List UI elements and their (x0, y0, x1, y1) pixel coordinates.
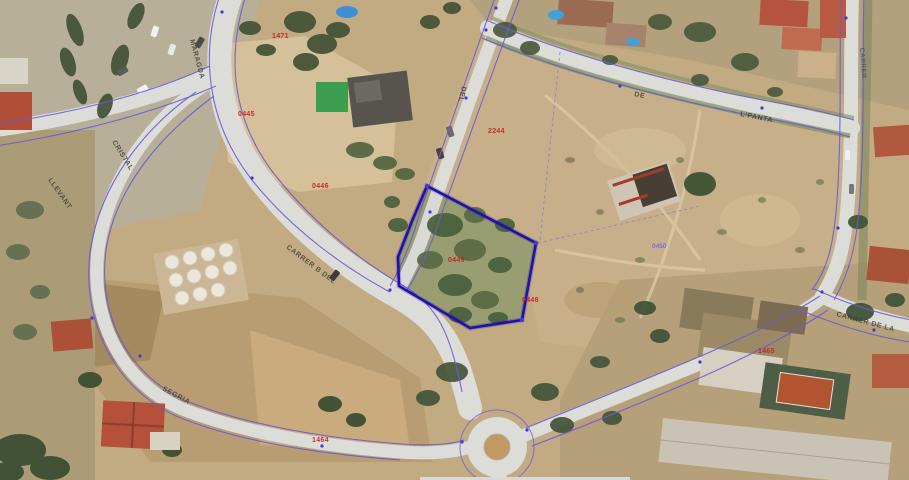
swimming-pool (548, 10, 564, 20)
parcel-number: 2244 (488, 128, 505, 135)
turf-yard (316, 82, 348, 112)
parcel-number: 0445 (238, 111, 255, 118)
swimming-pool (336, 6, 358, 18)
red-roof-building (0, 92, 32, 130)
parcel-number: 0449 (448, 257, 465, 264)
parcel-number: 1471 (272, 33, 289, 40)
swimming-pool (626, 38, 640, 46)
map-canvas[interactable]: MARAGDA CRISTAL LLEVANT CARRER B DEL DEL… (0, 0, 909, 480)
overlay-parcel-number: 0450 (652, 243, 667, 250)
parcel-number: 1465 (758, 348, 775, 355)
parcel-number: 1464 (312, 437, 329, 444)
map-viewport[interactable]: MARAGDA CRISTAL LLEVANT CARRER B DEL DEL… (0, 0, 909, 480)
parcel-number: 0448 (522, 297, 539, 304)
parcel-number: 0446 (312, 183, 329, 190)
